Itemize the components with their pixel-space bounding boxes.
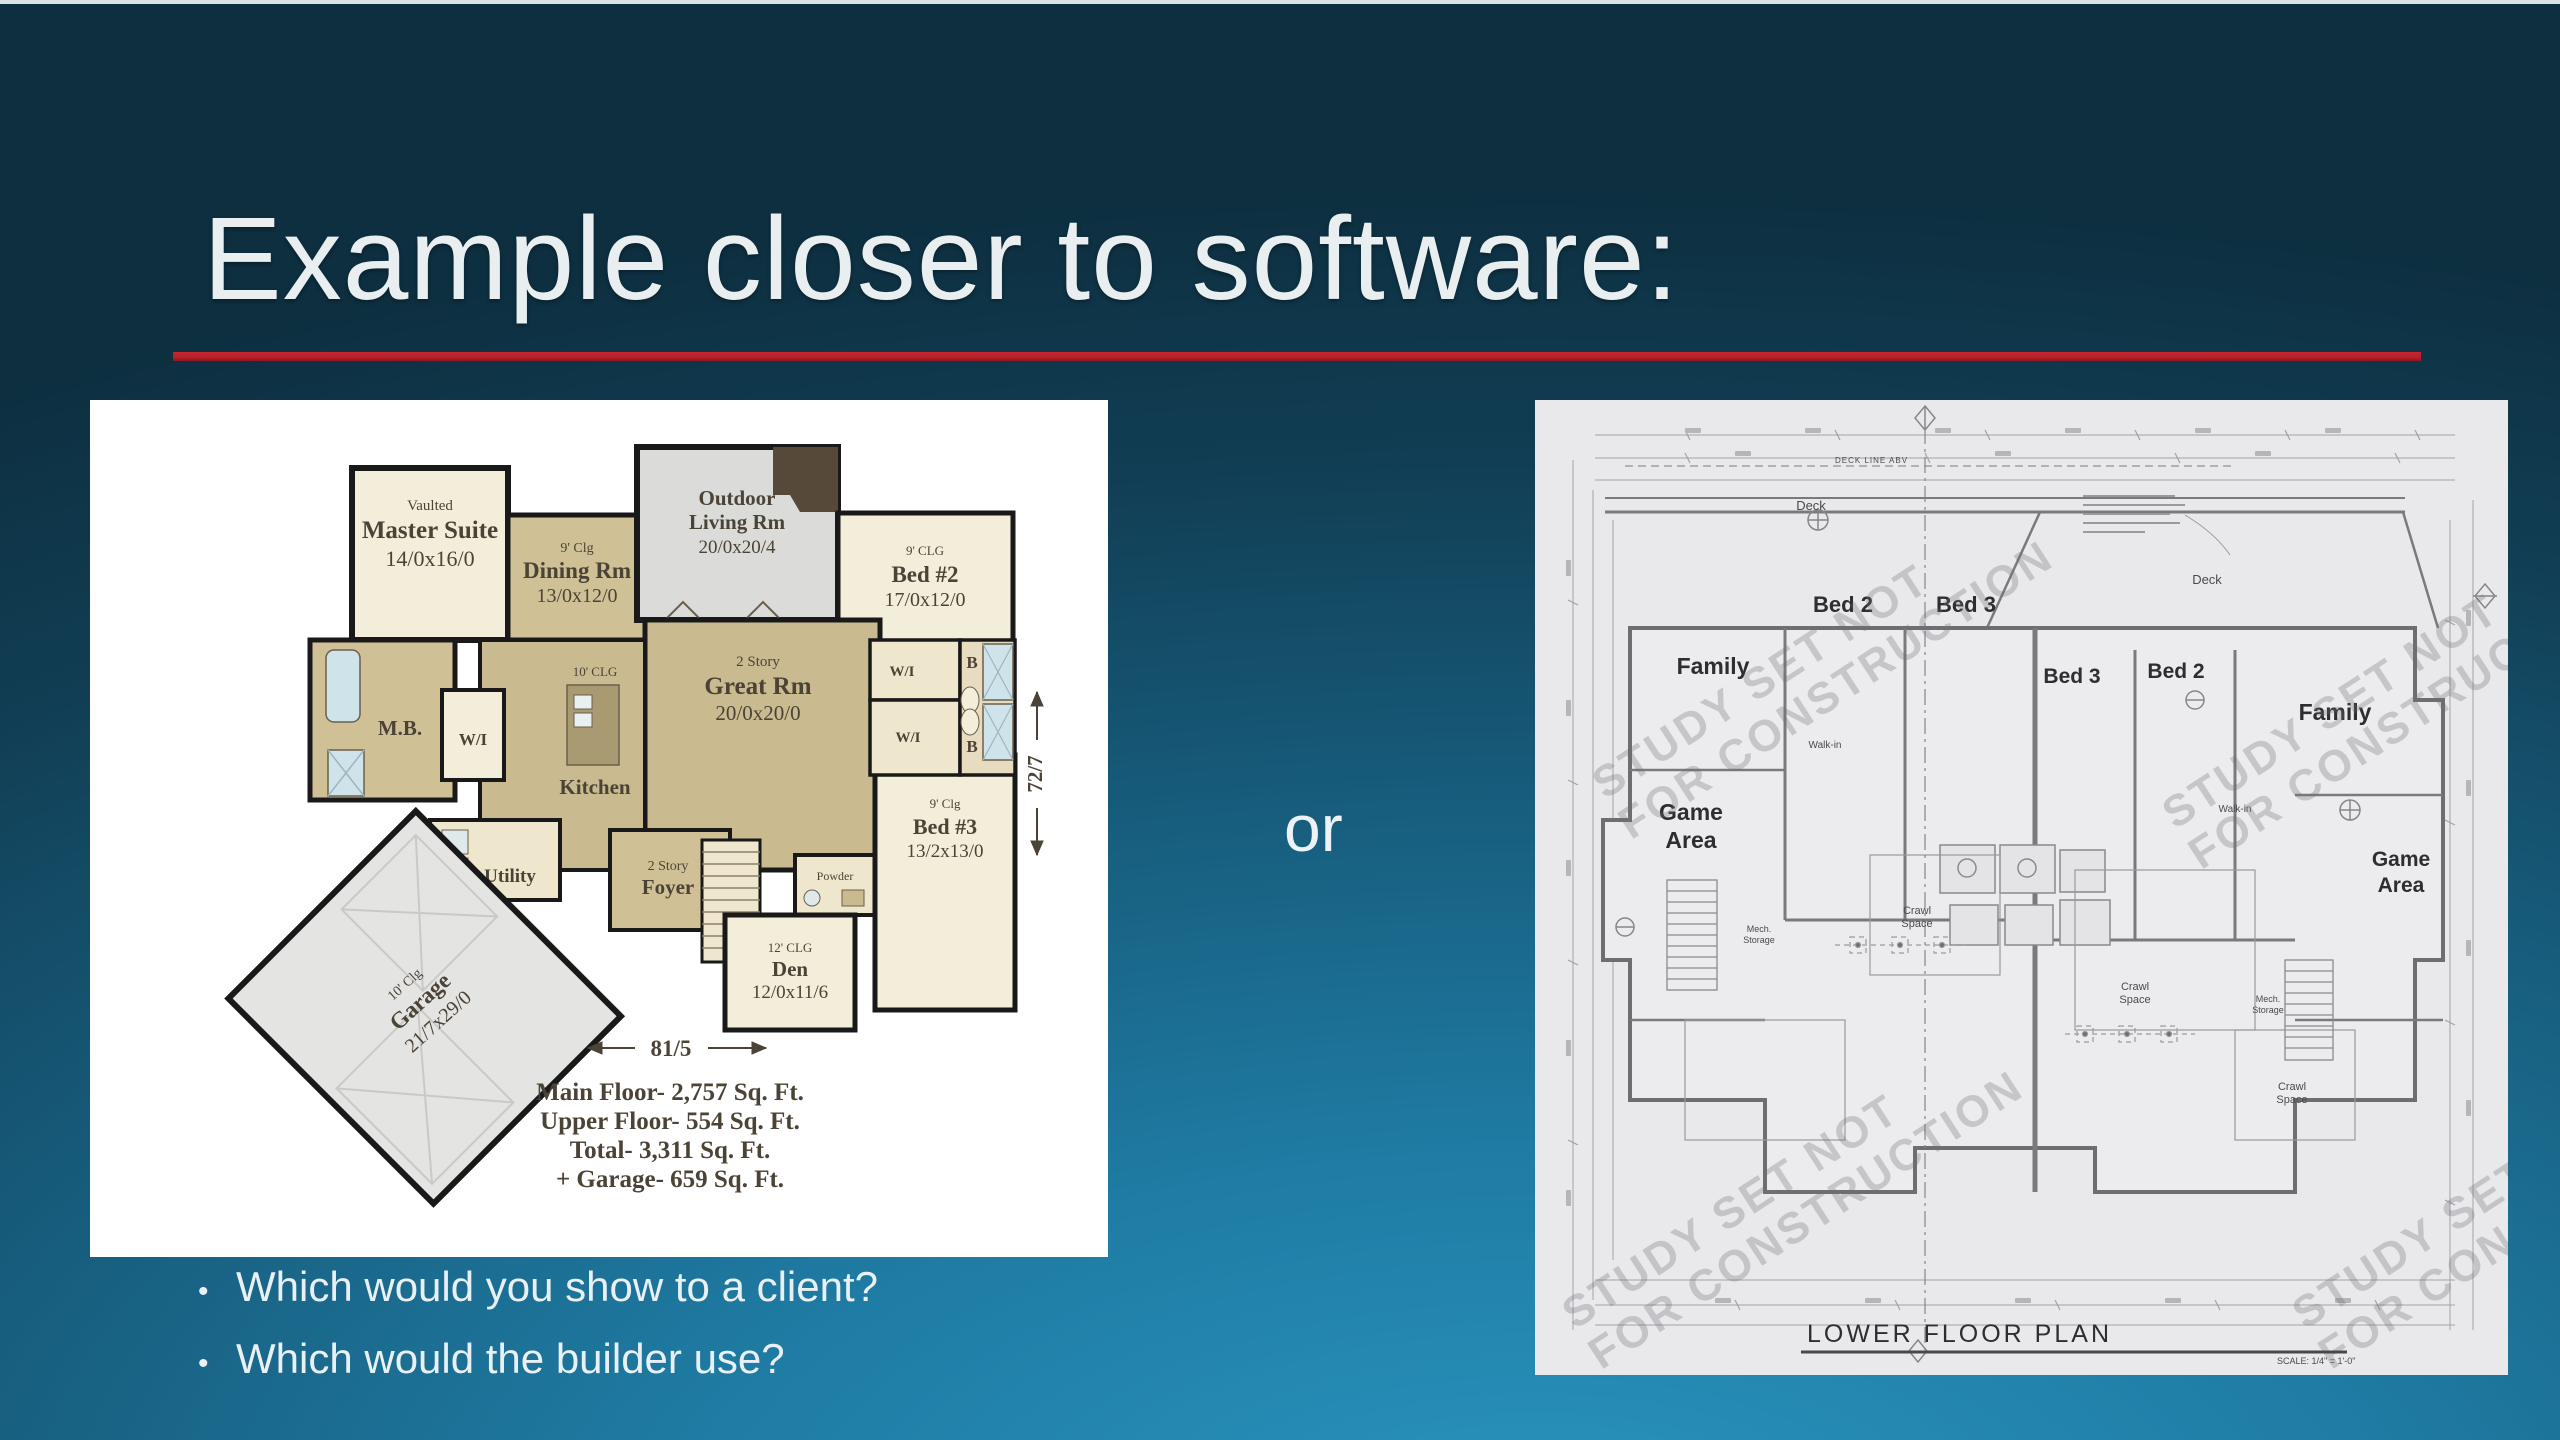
room-label: 20/0x20/4 xyxy=(698,537,776,558)
room-label: Dining Rm xyxy=(523,558,631,583)
room-label: 12' CLG xyxy=(768,940,813,955)
area-summary-line: Main Floor- 2,757 Sq. Ft. xyxy=(536,1079,804,1106)
room-label: Kitchen xyxy=(559,775,630,799)
label-crawl: Space xyxy=(2119,994,2150,1006)
slide-title: Example closer to software: xyxy=(203,191,1679,327)
blueprint-caption: LOWER FLOOR PLAN SCALE: 1/4" = 1'-0" xyxy=(1801,1320,2355,1366)
bullet-item: • Which would the builder use? xyxy=(198,1335,878,1383)
room-label: Foyer xyxy=(642,875,694,899)
bullet-text: Which would you show to a client? xyxy=(236,1263,878,1311)
bullet-glyph: • xyxy=(198,1347,236,1381)
label-mech: Mech. xyxy=(1747,924,1772,934)
room-master-closet: W/I xyxy=(442,690,504,780)
label-walkin: Walk-in xyxy=(1809,740,1842,751)
room-label: 10' CLG xyxy=(573,664,618,679)
room-label: 2 Story xyxy=(648,859,689,874)
room-label: Bed #3 xyxy=(913,814,977,839)
label-bed2: Bed 2 xyxy=(2147,660,2204,683)
label-game: Area xyxy=(2378,874,2425,897)
rendered-floor-plan-image: Vaulted Master Suite 14/0x16/0 9' Clg Di… xyxy=(90,400,1108,1257)
label-crawl: Space xyxy=(2276,1094,2307,1106)
room-label: 2 Story xyxy=(736,654,780,670)
label-crawl: Crawl xyxy=(2278,1081,2306,1093)
room-label: W/I xyxy=(459,730,488,749)
room-label: Master Suite xyxy=(362,517,498,544)
label-deck: Deck xyxy=(2192,572,2222,587)
label-game: Area xyxy=(1665,827,1716,853)
room-label: M.B. xyxy=(378,716,422,740)
area-summary-line: Total- 3,311 Sq. Ft. xyxy=(570,1137,771,1164)
dimension-width: 81/5 xyxy=(588,1036,766,1061)
room-label: 14/0x16/0 xyxy=(385,546,474,571)
label-mech: Storage xyxy=(2252,1005,2284,1015)
room-label: B xyxy=(966,653,977,672)
room-label: W/I xyxy=(895,730,920,746)
room-label: 9' CLG xyxy=(906,543,944,558)
blueprint-floor-plan-image: DECK LINE ABV xyxy=(1535,400,2508,1375)
slide-top-edge-highlight xyxy=(0,0,2560,4)
rendered-floor-plan-svg: Vaulted Master Suite 14/0x16/0 9' Clg Di… xyxy=(90,400,1108,1257)
room-label: 17/0x12/0 xyxy=(884,589,965,611)
bullet-item: • Which would you show to a client? xyxy=(198,1263,878,1311)
label-deck: Deck xyxy=(1796,498,1826,513)
room-label: Great Rm xyxy=(704,673,811,700)
room-label: B xyxy=(966,737,977,756)
bullet-text: Which would the builder use? xyxy=(236,1335,785,1383)
closets-and-baths: W/I W/I B B xyxy=(870,640,1015,775)
label-mech: Storage xyxy=(1743,935,1775,945)
room-master-bath: M.B. xyxy=(310,640,455,800)
room-label: Vaulted xyxy=(407,498,453,514)
deck-line-note: DECK LINE ABV xyxy=(1835,456,1908,465)
room-master-suite: Vaulted Master Suite 14/0x16/0 xyxy=(352,468,508,640)
annotation-block xyxy=(2083,496,2230,555)
dimension-height: 72/7 xyxy=(1023,692,1047,855)
room-bed-3: 9' Clg Bed #3 13/2x13/0 xyxy=(875,755,1015,1010)
blueprint-svg: DECK LINE ABV xyxy=(1535,400,2508,1375)
room-outdoor-living: Outdoor Living Rm 20/0x20/4 xyxy=(637,447,838,620)
room-powder: Powder xyxy=(795,855,875,915)
room-label: Bed #2 xyxy=(891,562,958,587)
room-label: W/I xyxy=(889,664,914,680)
room-label: 9' Clg xyxy=(560,541,593,556)
caption-text: LOWER FLOOR PLAN xyxy=(1807,1320,2112,1348)
dimension-label: 81/5 xyxy=(651,1036,692,1061)
room-label: 13/0x12/0 xyxy=(536,585,617,607)
room-label: Living Rm xyxy=(689,510,786,534)
room-label: 12/0x11/6 xyxy=(752,982,828,1003)
label-crawl: Crawl xyxy=(1903,905,1931,917)
dimension-label: 72/7 xyxy=(1023,755,1047,792)
bullet-glyph: • xyxy=(198,1275,236,1309)
room-label: Powder xyxy=(817,869,854,883)
room-label: 9' Clg xyxy=(930,796,961,811)
label-bed3: Bed 3 xyxy=(2043,665,2100,688)
room-label: 13/2x13/0 xyxy=(906,841,983,862)
caption-scale-note: SCALE: 1/4" = 1'-0" xyxy=(2277,1356,2355,1366)
room-den: 12' CLG Den 12/0x11/6 xyxy=(725,915,855,1030)
title-divider-rule xyxy=(173,352,2421,361)
label-game: Game xyxy=(2372,848,2430,871)
label-crawl: Crawl xyxy=(2121,981,2149,993)
label-crawl: Space xyxy=(1901,918,1932,930)
room-label: 20/0x20/0 xyxy=(715,701,800,725)
room-label: Outdoor xyxy=(698,486,775,510)
area-summary-line: Upper Floor- 554 Sq. Ft. xyxy=(540,1108,800,1135)
area-summary: Main Floor- 2,757 Sq. Ft. Upper Floor- 5… xyxy=(536,1079,804,1193)
room-dining: 9' Clg Dining Rm 13/0x12/0 xyxy=(508,515,645,640)
label-mech: Mech. xyxy=(2256,994,2281,1004)
bullet-list: • Which would you show to a client? • Wh… xyxy=(198,1263,878,1407)
or-connector-text: or xyxy=(1284,790,1343,866)
room-label: Den xyxy=(772,957,808,981)
area-summary-line: + Garage- 659 Sq. Ft. xyxy=(556,1166,784,1193)
